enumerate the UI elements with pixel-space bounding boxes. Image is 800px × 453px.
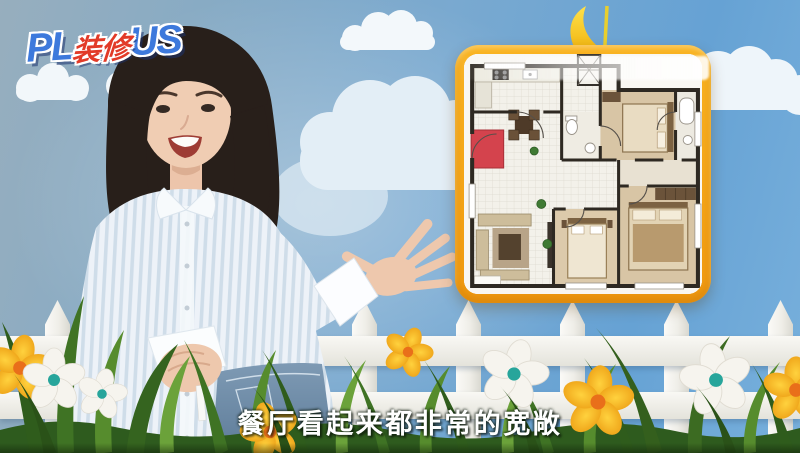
video-frame: 餐厅看起来都非常的宽敞 PL 装修 US [0, 0, 800, 453]
logo-text-prefix: PL [25, 24, 75, 72]
bottom-vignette [0, 443, 800, 453]
brand-logo: PL 装修 US [25, 17, 182, 71]
logo-badge-text: 装修 [71, 24, 132, 70]
logo-text-suffix: US [128, 17, 182, 65]
foreground-foliage [0, 0, 800, 453]
subtitle-text: 餐厅看起来都非常的宽敞 [0, 402, 800, 441]
